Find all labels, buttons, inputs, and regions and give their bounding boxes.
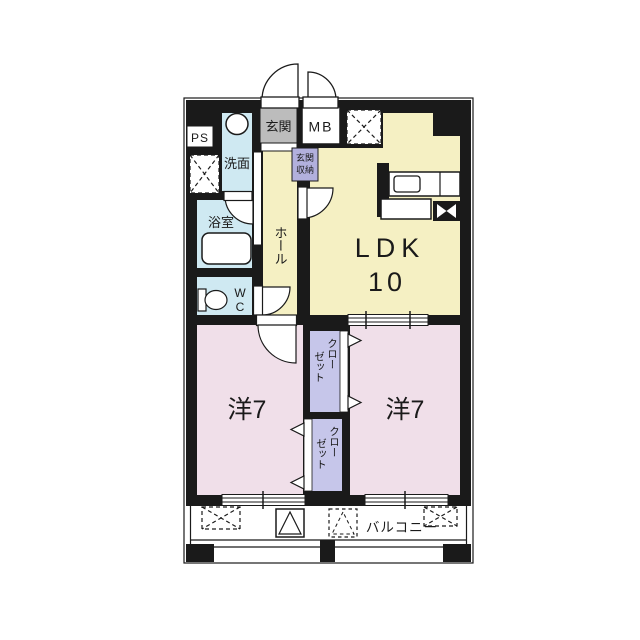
label-washroom: 洗面 xyxy=(224,156,250,171)
label-hall: ホール xyxy=(273,226,288,265)
label-bathroom: 浴室 xyxy=(208,215,234,230)
wall-ldk-notch xyxy=(433,100,460,136)
label-toilet: WC xyxy=(233,286,247,314)
balcony-corner-block-right xyxy=(443,544,471,562)
entrance-door-leaf xyxy=(261,97,299,108)
bathroom-door-leaf xyxy=(224,192,252,201)
balcony-hatch-dashed xyxy=(329,509,357,537)
toilet-bowl-icon xyxy=(205,291,227,310)
balcony-hatch-solid xyxy=(276,509,304,537)
meter-box-door-leaf xyxy=(303,97,338,108)
label-meter-box: MB xyxy=(309,119,334,135)
label-closet-top-col1: クロー xyxy=(326,338,338,370)
bedroom-left-door-leaf xyxy=(257,315,297,326)
label-balcony: バルコニー xyxy=(366,520,438,535)
label-entrance-storage-2: 収納 xyxy=(296,164,314,175)
kitchen-lower-cabinet xyxy=(381,199,431,219)
washroom-sliding-door xyxy=(254,152,262,245)
floor-plan-svg: PS 玄関 MB 玄関 収納 洗面 浴室 WC ホール LDK 10 洋7 洋7… xyxy=(0,0,640,640)
closet-top-door xyxy=(340,331,348,412)
label-ldk: LDK xyxy=(355,233,426,263)
label-closet-bottom-col1: クロー xyxy=(328,426,340,458)
balcony-center-post xyxy=(320,540,335,562)
label-bedroom-right: 洋7 xyxy=(386,396,425,424)
ldk-door-leaf xyxy=(298,187,307,219)
label-closet-top-col2: ゼット xyxy=(313,351,325,383)
kitchen-sink xyxy=(394,176,420,192)
bathtub-icon xyxy=(202,233,251,264)
wall-right xyxy=(460,100,471,506)
closet-bottom-door xyxy=(304,419,312,491)
label-entrance: 玄関 xyxy=(265,119,291,134)
toilet-door-leaf xyxy=(254,286,263,315)
wall-bath-toilet xyxy=(197,268,253,277)
label-bedroom-left: 洋7 xyxy=(228,396,267,424)
hatch-box-top xyxy=(347,110,381,144)
label-closet-bottom-col2: ゼット xyxy=(315,438,327,470)
washbasin-icon xyxy=(226,114,248,135)
floor-plan-page: PS 玄関 MB 玄関 収納 洗面 浴室 WC ホール LDK 10 洋7 洋7… xyxy=(0,0,640,640)
hatch-box-ps xyxy=(190,155,219,193)
label-ldk-size: 10 xyxy=(368,267,406,297)
label-pipe-space: PS xyxy=(191,131,209,145)
balcony-corner-block-left xyxy=(186,544,214,562)
hatch-box-balcony-left xyxy=(202,507,240,529)
label-entrance-storage-1: 玄関 xyxy=(296,152,314,163)
